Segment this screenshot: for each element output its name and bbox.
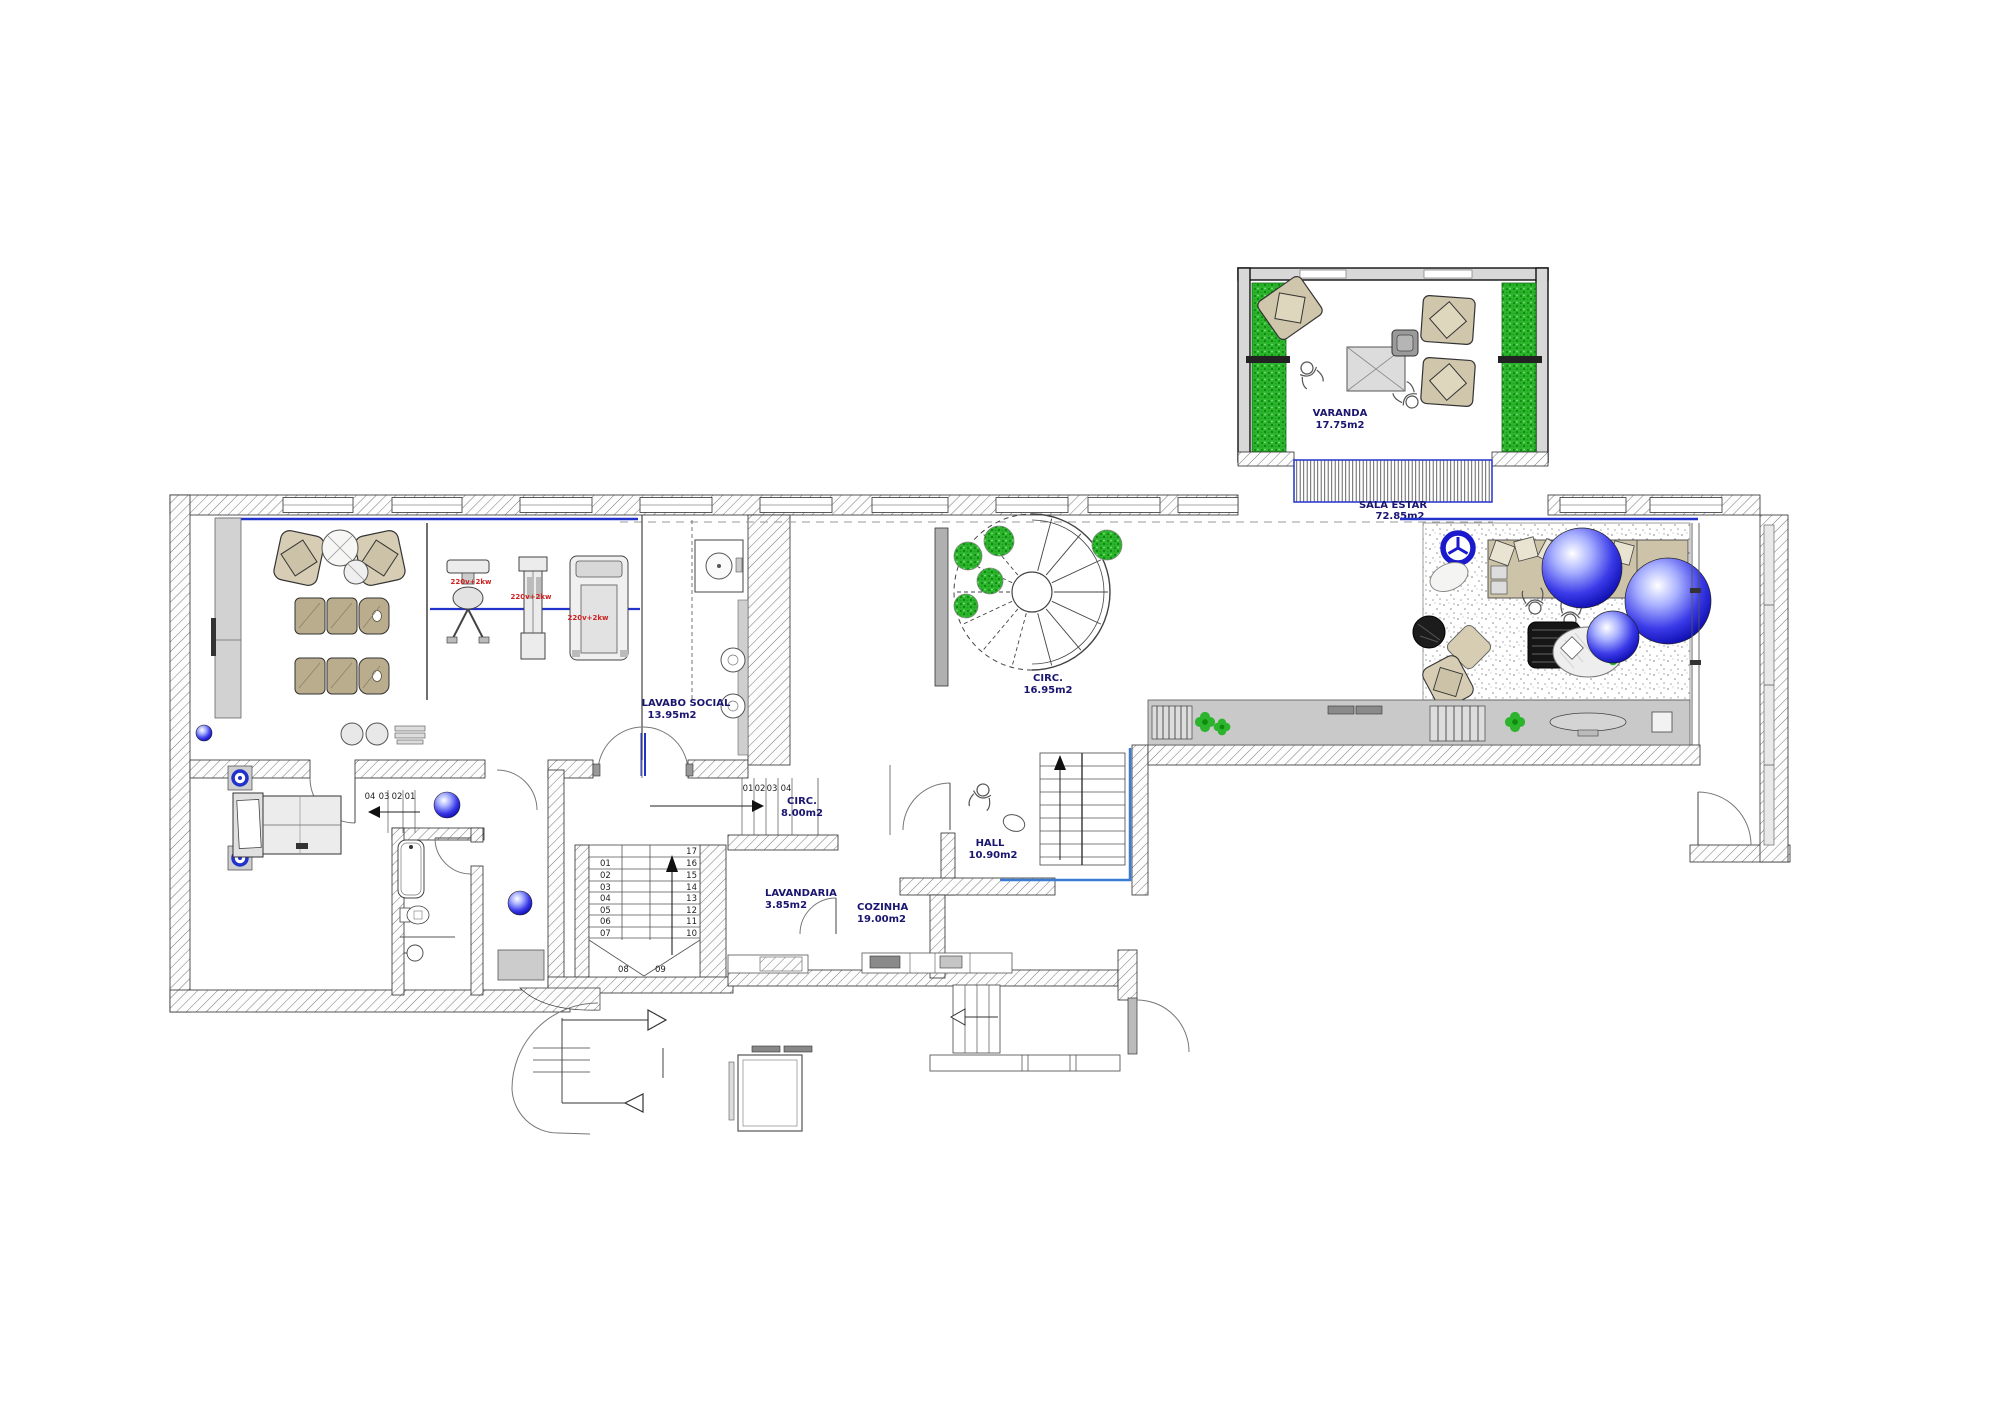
armchair bbox=[272, 529, 325, 587]
sink bbox=[404, 945, 423, 961]
room-label-hall: HALL bbox=[976, 838, 1005, 849]
exercise-ball bbox=[366, 723, 388, 745]
stair-step-number: 11 bbox=[686, 917, 697, 927]
media-console bbox=[1148, 700, 1690, 745]
speaker-ring bbox=[233, 771, 247, 785]
stair-step-number: 01 bbox=[405, 792, 416, 802]
blue-sphere bbox=[1587, 611, 1639, 663]
living-room bbox=[1148, 519, 1774, 845]
stair-step-number: 09 bbox=[655, 965, 666, 975]
cabinet bbox=[498, 950, 544, 980]
room-area-circ2: 8.00m2 bbox=[781, 808, 823, 819]
exterior-furniture bbox=[729, 1046, 812, 1131]
tv bbox=[1550, 713, 1626, 731]
bathroom-door-arc bbox=[435, 838, 471, 874]
wash-basin bbox=[721, 648, 745, 672]
stair-step-number: 14 bbox=[686, 883, 697, 893]
room-label-cozinha: COZINHA bbox=[857, 902, 909, 913]
bathtub bbox=[398, 840, 424, 898]
bed bbox=[233, 793, 341, 857]
room-area-lavandaria: 3.85m2 bbox=[765, 900, 807, 911]
stair-step-number: 08 bbox=[618, 965, 629, 975]
stair-step-number: 10 bbox=[686, 929, 697, 939]
plant bbox=[984, 526, 1014, 556]
gym-area: 220v+2kw 220v+2kw 220v+2kw bbox=[427, 523, 640, 700]
power-annotation: 220v+2kw bbox=[450, 578, 492, 586]
stair-step-number: 17 bbox=[686, 847, 697, 857]
room-label-varanda: VARANDA bbox=[1313, 408, 1368, 419]
room-label-circ2: CIRC. bbox=[787, 796, 817, 807]
stair-step-number: 07 bbox=[600, 929, 611, 939]
plant bbox=[954, 542, 982, 570]
room-area-varanda: 17.75m2 bbox=[1315, 420, 1364, 431]
stair-step-number: 01 bbox=[743, 784, 754, 794]
room-area-lavabo: 13.95m2 bbox=[647, 710, 696, 721]
spiral-stair-area: CIRC. 16.95m2 bbox=[935, 514, 1122, 696]
hall-stair bbox=[1040, 753, 1125, 865]
plant bbox=[954, 594, 978, 618]
stair-step-number: 03 bbox=[767, 784, 778, 794]
blue-sphere bbox=[434, 792, 460, 818]
person-figure bbox=[1295, 358, 1324, 389]
stair-step-number: 16 bbox=[686, 859, 697, 869]
plant bbox=[977, 568, 1003, 594]
main-stairwell: 01 02 03 04 05 06 07 08 09 10 11 12 13 1… bbox=[589, 845, 700, 977]
stair-step-number: 04 bbox=[781, 784, 792, 794]
stair-step-number: 01 bbox=[600, 859, 611, 869]
stair-step-number: 02 bbox=[600, 871, 611, 881]
ceiling-fan bbox=[1443, 533, 1473, 563]
stair-step-number: 03 bbox=[600, 883, 611, 893]
room-area-hall: 10.90m2 bbox=[968, 850, 1017, 861]
stair-step-number: 05 bbox=[600, 906, 611, 916]
stair-step-number: 02 bbox=[392, 792, 403, 802]
blue-sphere bbox=[196, 725, 212, 741]
floor-plan-canvas: VARANDA 17.75m2 SALA ESTAR 72.85m2 bbox=[0, 0, 2000, 1414]
stair-step-number: 02 bbox=[755, 784, 766, 794]
bedroom-steps: 04 03 02 01 bbox=[365, 790, 420, 833]
blue-sphere bbox=[508, 891, 532, 915]
room-area-circ: 16.95m2 bbox=[1023, 685, 1072, 696]
room-area-sala: 72.85m2 bbox=[1375, 511, 1424, 522]
massage-table bbox=[295, 658, 389, 694]
exercise-ball bbox=[341, 723, 363, 745]
veranda-room: VARANDA 17.75m2 bbox=[1238, 268, 1548, 502]
power-annotation: 220v+2kw bbox=[567, 614, 609, 622]
lavabo-room: LAVABO SOCIAL 13.95m2 bbox=[642, 515, 748, 760]
stair-step-number: 12 bbox=[686, 906, 697, 916]
stair-step-number: 13 bbox=[686, 894, 697, 904]
power-annotation: 220v+2kw bbox=[510, 593, 552, 601]
spiral-stair bbox=[954, 514, 1110, 670]
hedge-right bbox=[1502, 283, 1536, 452]
floor-plan-drawing: VARANDA 17.75m2 SALA ESTAR 72.85m2 bbox=[0, 0, 2000, 1414]
stair-step-number: 15 bbox=[686, 871, 697, 881]
lounge-chair bbox=[1420, 295, 1475, 345]
plant bbox=[1092, 530, 1122, 560]
blue-sphere bbox=[1542, 528, 1622, 608]
toilet bbox=[400, 906, 429, 924]
stair-step-number: 06 bbox=[600, 917, 611, 927]
gym-machine bbox=[447, 560, 489, 643]
stair-step-number: 04 bbox=[600, 894, 611, 904]
massage-table bbox=[295, 598, 389, 634]
stair-step-number: 03 bbox=[379, 792, 390, 802]
room-area-cozinha: 19.00m2 bbox=[857, 914, 906, 925]
entry-steps bbox=[930, 985, 1120, 1071]
double-door bbox=[593, 727, 693, 776]
person-figure bbox=[968, 782, 994, 811]
entry-door bbox=[1128, 998, 1189, 1054]
lounge-chair bbox=[1420, 357, 1475, 407]
weight-plates bbox=[395, 726, 425, 731]
room-label-lavabo: LAVABO SOCIAL bbox=[642, 698, 731, 709]
bathroom bbox=[398, 838, 471, 961]
accordion-door bbox=[1294, 460, 1492, 502]
stair-step-number: 04 bbox=[365, 792, 376, 802]
room-label-lavandaria: LAVANDARIA bbox=[765, 888, 837, 899]
corridor-door-arc bbox=[497, 770, 537, 810]
bedroom: 04 03 02 01 bbox=[228, 766, 420, 870]
room-label-circ: CIRC. bbox=[1033, 673, 1063, 684]
treadmill bbox=[570, 556, 628, 660]
room-label-sala: SALA ESTAR bbox=[1359, 500, 1427, 511]
